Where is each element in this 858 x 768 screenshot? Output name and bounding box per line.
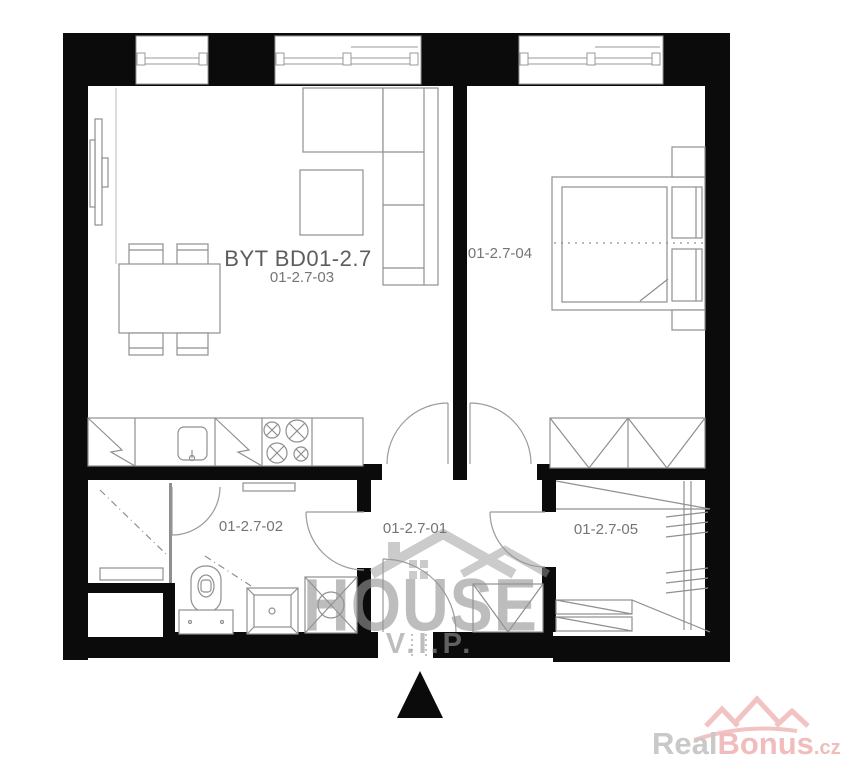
closet-fittings [556, 481, 710, 632]
brand-tld: .cz [814, 737, 841, 759]
bedroom-furniture [550, 147, 705, 468]
brand-word-pink: Bonus [717, 726, 813, 761]
living-room-furniture [90, 88, 438, 355]
nightstand-top [672, 147, 705, 177]
nightstand-bottom [672, 310, 705, 330]
brand-logo: RealBonus.cz [652, 728, 841, 759]
door-bathroom [306, 512, 364, 570]
room-label-hallway: 01-2.7-01 [383, 520, 447, 537]
window-living-main [275, 36, 421, 84]
double-bed [552, 177, 705, 310]
door-living-room [387, 403, 448, 464]
sink-vanity [247, 588, 298, 634]
entrance-arrow [397, 671, 443, 718]
room-label-bathroom: 01-2.7-02 [219, 518, 283, 535]
watermark-subtitle: V.I.P. [386, 630, 475, 659]
bedroom-wardrobe [550, 418, 705, 468]
bathroom-shelf [243, 483, 295, 491]
installation-niche [88, 593, 163, 637]
kitchen-counter [88, 418, 363, 466]
room-label-living-kitchen: 01-2.7-03 [270, 269, 334, 286]
dining-table-set [119, 244, 220, 355]
closet-shelves [556, 600, 710, 632]
coffee-table [300, 170, 363, 235]
shower-bench [100, 568, 163, 580]
room-label-bedroom: 01-2.7-04 [468, 245, 532, 262]
room-label-closet: 01-2.7-05 [574, 521, 638, 538]
window-living-left [136, 36, 208, 84]
window-bedroom [519, 36, 663, 84]
door-shower [172, 487, 220, 535]
clothes-rail [666, 481, 708, 630]
tv-unit [90, 119, 108, 225]
floorplan-canvas: BYT BD01-2.7 01-2.7-03 01-2.7-04 01-2.7-… [0, 0, 858, 768]
brand-word-gray: Real [652, 726, 717, 761]
toilet [179, 566, 233, 634]
door-bedroom [470, 403, 531, 464]
